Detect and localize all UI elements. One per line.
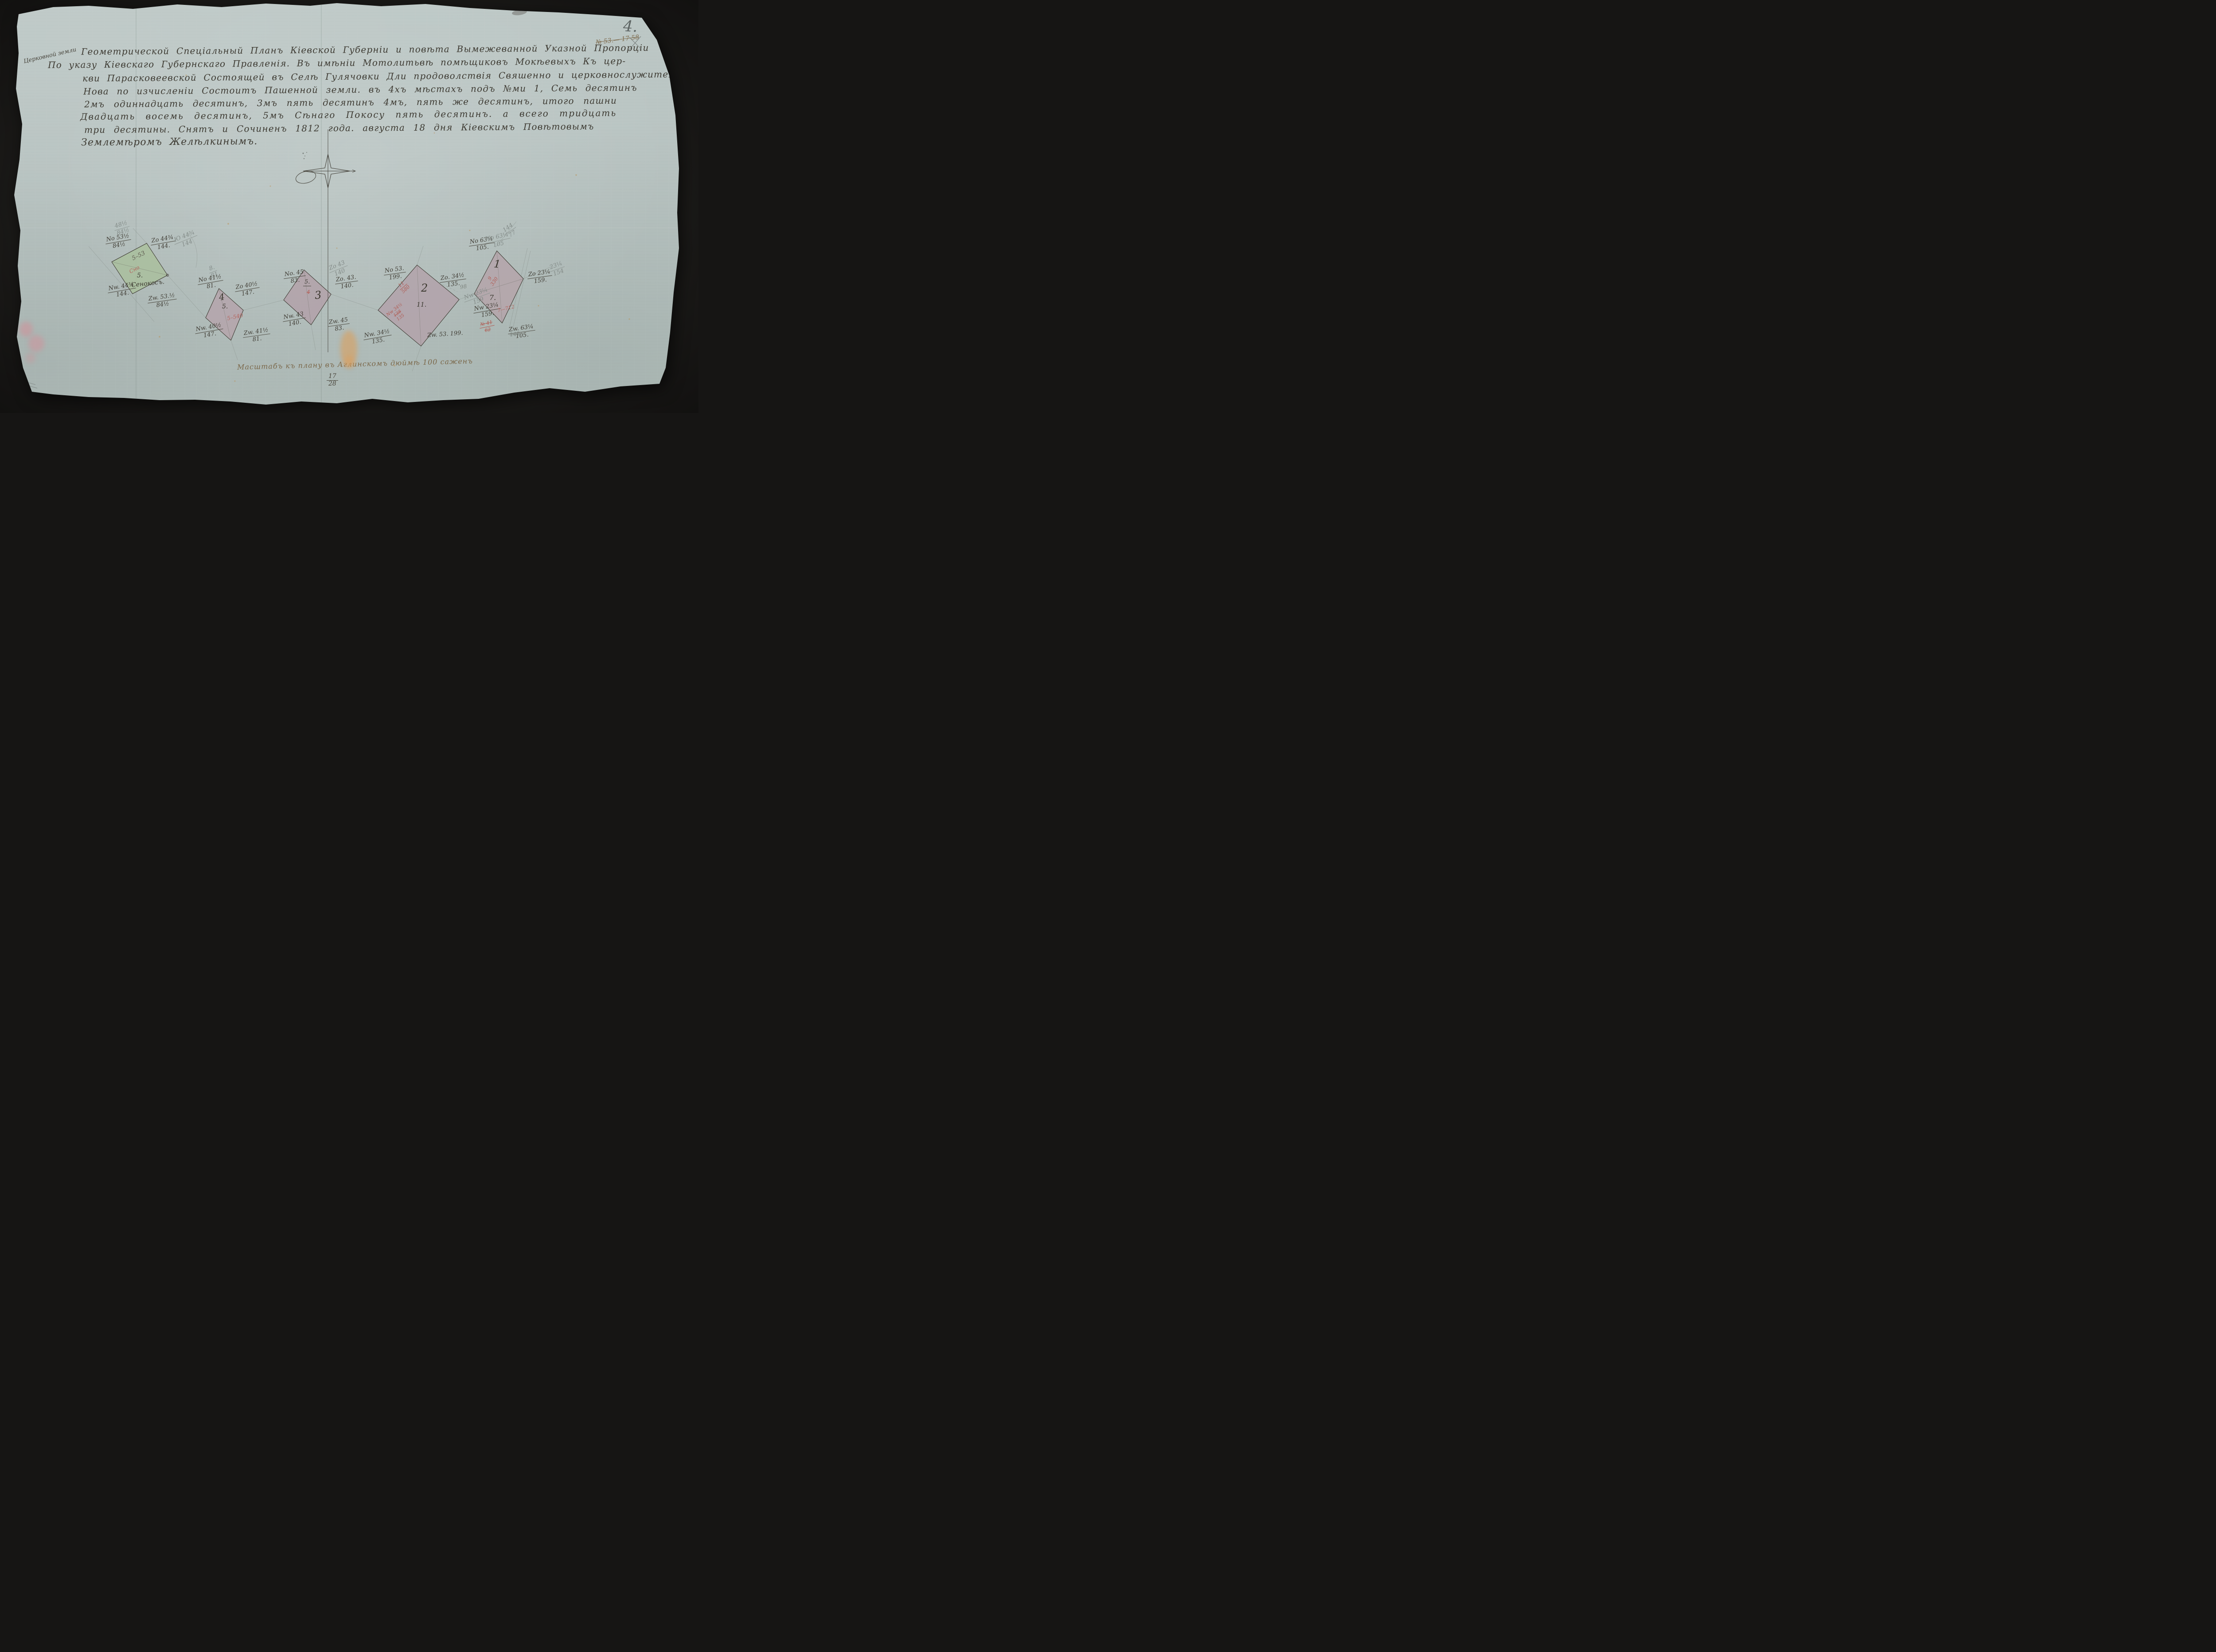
parcel2-number-big: 2: [421, 282, 428, 294]
parcel4-number-big: 4: [218, 291, 225, 303]
parcel5-number: 5.: [137, 272, 143, 279]
parcel4-number-small: 5.: [222, 303, 228, 310]
page-number: 4.: [623, 17, 638, 36]
parcel2-number-small: 11.: [417, 301, 426, 308]
pink-stain-faint: [26, 353, 35, 363]
paper-sheet-wrap: Церковной земли Геометрической Спеціальн…: [0, 0, 698, 413]
parcel1-number-small: 7.: [489, 293, 496, 302]
scale-fraction: 17 28: [327, 373, 338, 387]
parcel1-number-big: 1: [493, 257, 501, 270]
left-edge-note: 3.: [10, 362, 19, 370]
parcel3-red-struck: 4: [307, 289, 310, 295]
parcel3-number-small: 5.: [303, 279, 311, 286]
scanned-survey-plan: Церковной земли Геометрической Спеціальн…: [0, 0, 698, 413]
paper-sheet: Церковной земли Геометрической Спеціальн…: [0, 0, 698, 413]
signature-line: Землемѣромъ Желѣлкинымъ.: [81, 136, 258, 148]
parcel3-number-big: 3: [314, 288, 322, 301]
pink-stain: [28, 335, 44, 352]
orange-stain-small: [344, 355, 355, 369]
pink-stain: [20, 322, 33, 337]
parcel2-pencil-98: 98: [460, 283, 467, 290]
horizontal-crease: [0, 227, 698, 228]
